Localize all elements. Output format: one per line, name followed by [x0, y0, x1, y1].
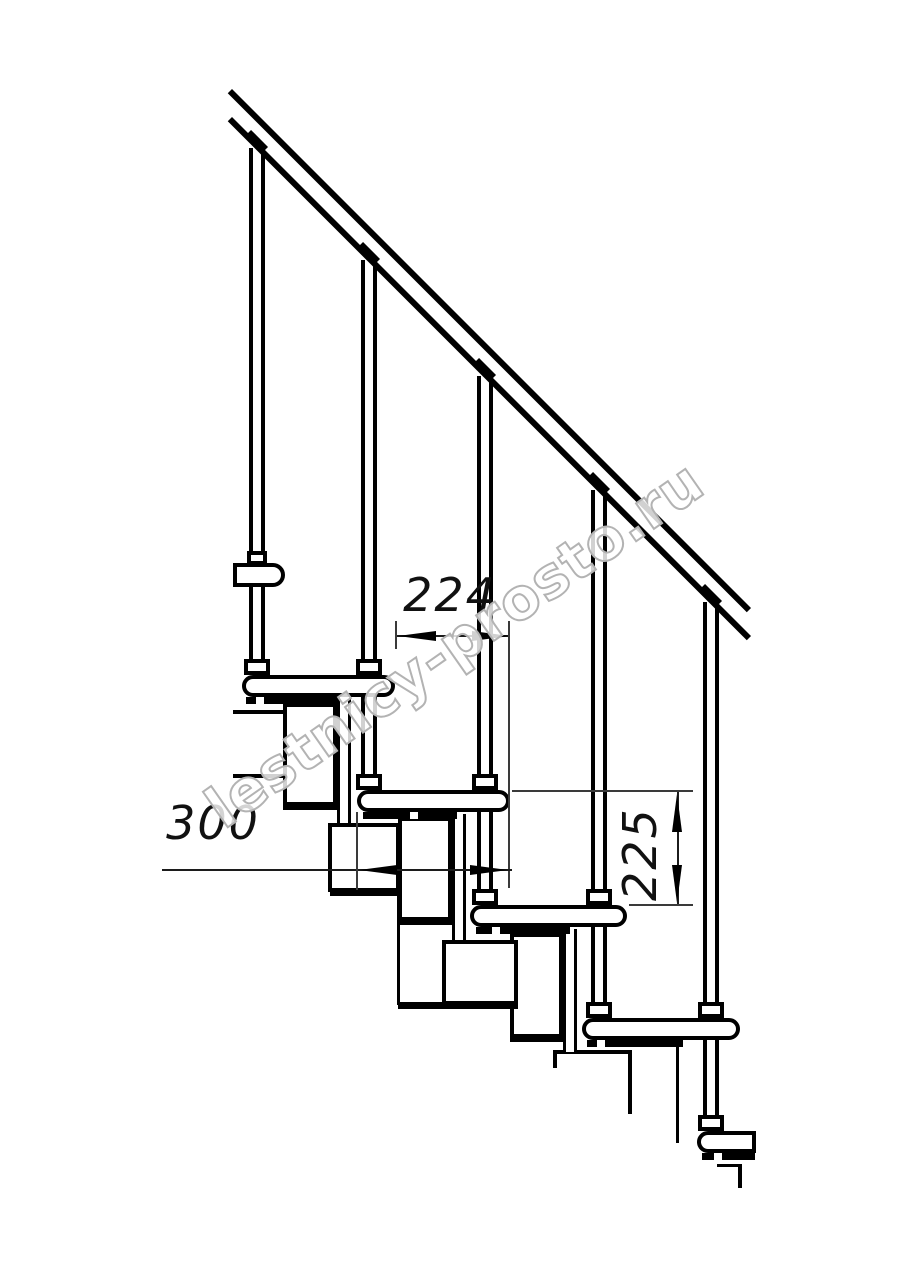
tread-3-shadow-notch — [492, 927, 500, 934]
extension-line-rise-top — [512, 790, 693, 792]
baluster-5-collar-tread-4 — [698, 1002, 724, 1018]
tread-5-shadow — [702, 1153, 755, 1160]
extension-line-rise-bottom — [629, 904, 693, 906]
baluster-5-collar-tread-5 — [698, 1115, 724, 1131]
tread-3-shadow — [476, 927, 570, 934]
dimension-arrow-rise-down — [672, 865, 682, 903]
support-module-v3-shadow — [510, 1035, 563, 1042]
extension-line-depth-left — [356, 812, 358, 890]
tread-4-shadow-notch — [597, 1040, 605, 1047]
baluster-5 — [703, 602, 719, 1131]
module4-fade-edge — [628, 1054, 632, 1114]
dimension-arrow-rise-up — [672, 794, 682, 832]
support-module-v1-shadow — [283, 803, 337, 810]
module4-fade-edge2 — [676, 1043, 679, 1143]
tread-5-shadow-notch — [714, 1153, 722, 1160]
baluster-3-collar-tread-3 — [472, 889, 498, 905]
tread-4 — [582, 1018, 740, 1040]
baluster-1 — [249, 148, 265, 675]
tread-2 — [357, 790, 510, 812]
dimension-label-rise: 225 — [617, 811, 663, 901]
support-module-s2 — [442, 940, 518, 1005]
support-module-v2-shadow — [398, 918, 452, 925]
baluster-2-collar-tread-2 — [356, 774, 382, 790]
module-connector-3 — [563, 929, 577, 1052]
tread-5 — [697, 1131, 756, 1153]
staircase-technical-drawing: 224 300 225 lestnicy-prosto.ru — [0, 0, 914, 1280]
module-connector-2 — [452, 814, 466, 942]
extension-line-run-right — [508, 621, 510, 888]
baluster-4-collar-tread-3 — [586, 889, 612, 905]
support-module-s1-shadow — [330, 889, 400, 896]
module5-fade-edge — [738, 1164, 742, 1188]
tread-3 — [470, 905, 627, 927]
tread-1-shadow-notch — [256, 697, 264, 704]
support-module-s1 — [328, 823, 400, 892]
tread-2-shadow-notch — [410, 812, 418, 819]
baluster-1-bracket — [233, 563, 285, 587]
baluster-3-collar-tread-2 — [472, 774, 498, 790]
module4-fade-hook — [553, 1050, 557, 1068]
landing-cut-line-top — [233, 710, 288, 714]
baluster-1-bracket-collar — [247, 551, 267, 565]
support-module-s2-shadow — [398, 1002, 518, 1009]
baluster-4-collar-tread-4 — [586, 1002, 612, 1018]
baluster-1-collar-tread-1 — [244, 659, 270, 675]
dimension-line-depth — [162, 869, 512, 871]
